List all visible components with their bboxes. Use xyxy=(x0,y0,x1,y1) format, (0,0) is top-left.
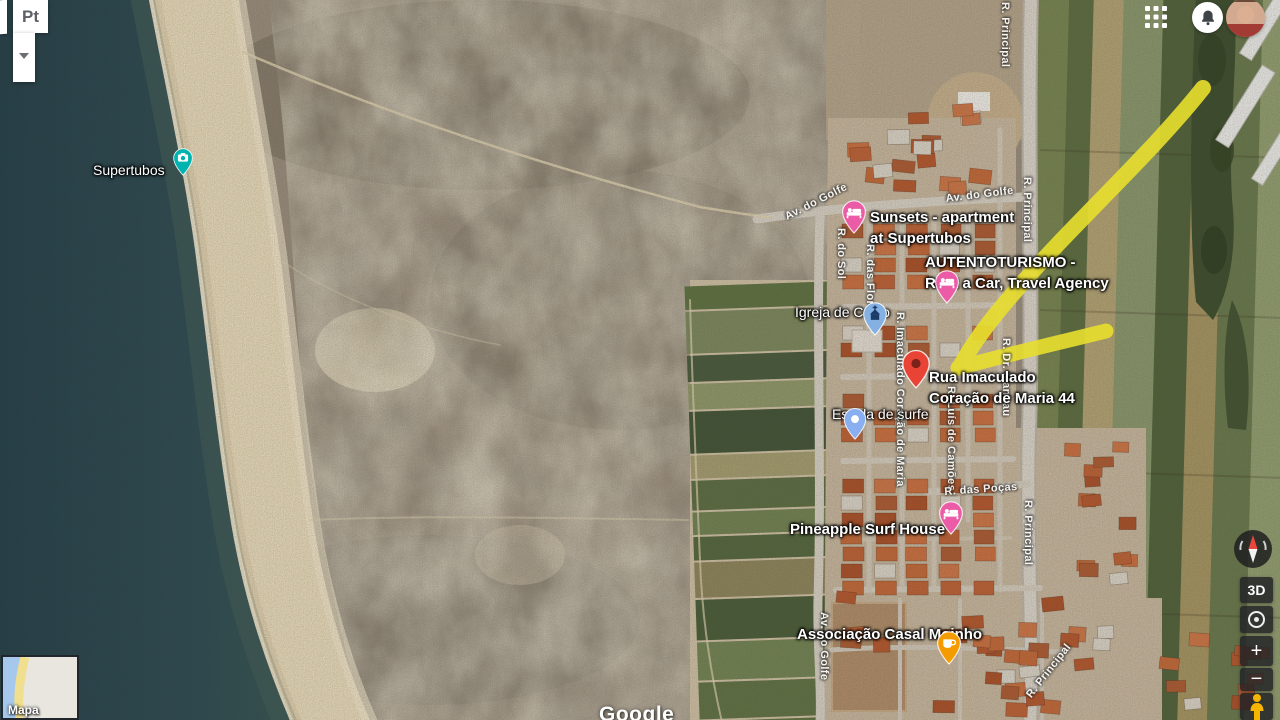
poi-pin-escola-de-surfe[interactable] xyxy=(843,408,866,445)
poi-label-line: Rua Imaculado xyxy=(929,367,1075,388)
lodging-pin-sunsets[interactable] xyxy=(842,200,867,239)
poi-label-line: Pineapple Surf House xyxy=(790,519,945,540)
zoom-out-button[interactable]: − xyxy=(1240,668,1273,691)
cafe-pin-associacao[interactable] xyxy=(937,631,962,670)
notifications-button[interactable] xyxy=(1192,2,1223,33)
language-label: Pt xyxy=(22,7,39,27)
poi-label-line: Coração de Maria 44 xyxy=(929,388,1075,409)
bed-icon xyxy=(939,501,964,535)
chevron-down-icon xyxy=(19,53,29,59)
cropped-panel-edge xyxy=(0,0,7,34)
minimap-toggle[interactable]: Mapa xyxy=(1,655,79,720)
my-location-button[interactable] xyxy=(1240,606,1273,633)
map-canvas[interactable]: Av. do GolfeAv. do GolfeR. PrincipalR. P… xyxy=(0,0,1280,720)
poi-label-line: Supertubos xyxy=(93,160,165,181)
destination-pin-rua-imaculado-44[interactable] xyxy=(902,349,931,394)
3d-label: 3D xyxy=(1248,582,1266,598)
language-button[interactable]: Pt xyxy=(13,0,48,33)
my-location-icon xyxy=(1248,611,1265,628)
satellite-terrain xyxy=(0,0,1280,720)
3d-view-button[interactable]: 3D xyxy=(1240,577,1273,603)
cup-icon xyxy=(937,631,962,665)
apps-grid-icon[interactable] xyxy=(1144,5,1168,29)
google-watermark: Google xyxy=(599,703,674,720)
poi-label-line: at Supertubos xyxy=(870,228,1014,249)
photo-spot-pin-supertubos[interactable] xyxy=(173,148,193,181)
pegman-button[interactable] xyxy=(1240,693,1273,720)
hole-icon xyxy=(902,349,931,389)
label-sunsets-apartment[interactable]: Sunsets - apartmentat Supertubos xyxy=(870,207,1014,249)
minus-icon: − xyxy=(1251,668,1263,691)
lodging-pin-autentoturismo[interactable] xyxy=(935,270,960,309)
compass-icon[interactable] xyxy=(1233,529,1273,569)
bed-icon xyxy=(935,270,960,304)
pegman-icon xyxy=(1246,693,1268,720)
dot-icon xyxy=(843,408,866,440)
lodging-pin-pineapple[interactable] xyxy=(939,501,964,540)
church-icon xyxy=(863,302,888,336)
camera-icon xyxy=(173,148,193,176)
plus-icon: + xyxy=(1251,640,1263,663)
label-pineapple-surf-house[interactable]: Pineapple Surf House xyxy=(790,519,945,540)
label-supertubos[interactable]: Supertubos xyxy=(93,160,165,181)
minimap-label: Mapa xyxy=(8,703,39,717)
label-rua-imaculado-44[interactable]: Rua ImaculadoCoração de Maria 44 xyxy=(929,367,1075,409)
zoom-in-button[interactable]: + xyxy=(1240,636,1273,666)
bell-icon xyxy=(1199,9,1217,27)
bed-icon xyxy=(842,200,867,234)
church-pin-igreja-de-cristo[interactable] xyxy=(863,302,888,341)
poi-label-line: Sunsets - apartment xyxy=(870,207,1014,228)
language-dropdown-button[interactable] xyxy=(13,33,35,82)
